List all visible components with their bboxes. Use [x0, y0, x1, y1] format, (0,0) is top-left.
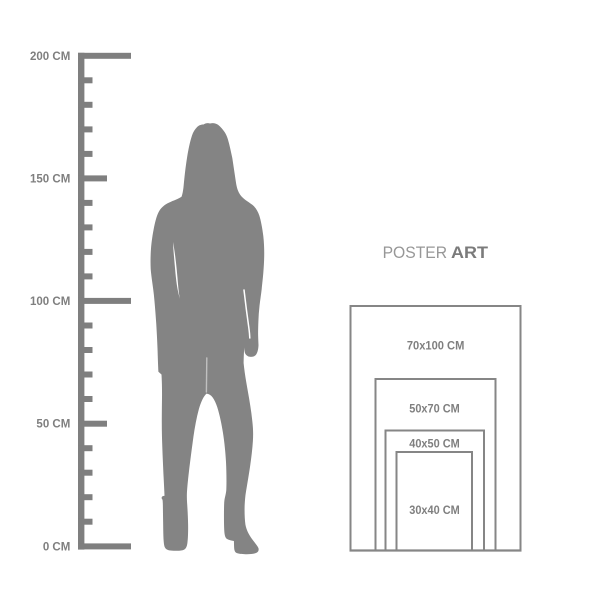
svg-text:200 CM: 200 CM	[30, 51, 70, 63]
svg-text:150 CM: 150 CM	[30, 174, 70, 186]
svg-text:50 CM: 50 CM	[36, 419, 70, 431]
svg-text:50x70 CM: 50x70 CM	[409, 404, 460, 416]
svg-text:POSTER: POSTER	[383, 243, 448, 262]
svg-text:30x40 CM: 30x40 CM	[409, 505, 460, 517]
svg-text:100 CM: 100 CM	[30, 296, 70, 308]
svg-text:70x100 CM: 70x100 CM	[407, 341, 465, 353]
svg-text:0 CM: 0 CM	[43, 541, 70, 553]
svg-text:40x50 CM: 40x50 CM	[409, 439, 460, 451]
svg-text:ART: ART	[451, 243, 489, 262]
